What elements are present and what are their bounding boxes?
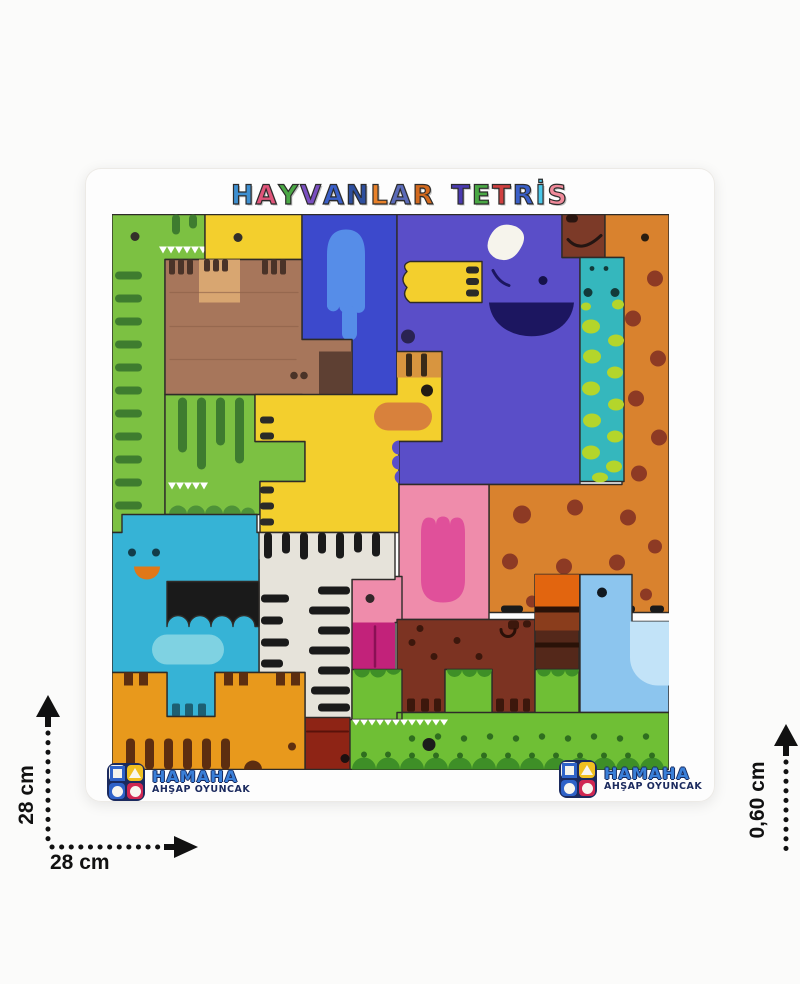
title-letter: İ: [536, 180, 548, 211]
puzzle-piece-pig: [399, 485, 489, 620]
piece-detail: [189, 215, 197, 229]
piece-detail: [609, 555, 625, 571]
logo-circle-icon: [561, 780, 577, 796]
piece-detail: [647, 271, 663, 287]
piece-detail: [372, 533, 380, 557]
piece-detail: [152, 635, 224, 665]
piece-detail: [260, 503, 274, 510]
piece-detail: [409, 639, 416, 646]
piece-detail: [169, 260, 175, 275]
title-letter: R: [413, 180, 436, 211]
piece-detail: [590, 266, 595, 271]
title-letter: T: [492, 180, 512, 211]
piece-detail: [597, 588, 607, 598]
piece-detail: [617, 735, 623, 741]
piece-detail: [115, 433, 142, 441]
piece-detail: [264, 533, 272, 559]
piece-detail: [606, 461, 622, 473]
logo-triangle-icon: [127, 765, 143, 781]
title-letter: S: [548, 180, 569, 211]
piece-detail: [612, 300, 624, 310]
logo-triangle-icon: [579, 762, 595, 778]
piece-detail: [604, 266, 609, 271]
piece-detail: [222, 260, 228, 272]
piece-detail: [139, 673, 148, 686]
piece-detail: [510, 699, 518, 712]
piece-detail: [185, 704, 193, 717]
piece-detail: [336, 533, 344, 559]
piece-detail: [476, 653, 483, 660]
width-label: 28 cm: [50, 851, 110, 875]
piece-detail: [318, 627, 350, 635]
piece-detail: [421, 354, 427, 377]
piece-detail: [421, 699, 429, 712]
piece-detail: [620, 510, 636, 526]
piece-detail: [271, 260, 277, 275]
puzzle-piece-moose-head: [562, 215, 605, 258]
piece-detail: [291, 673, 300, 686]
piece-detail: [224, 673, 233, 686]
piece-detail: [128, 549, 136, 557]
piece-detail: [280, 260, 286, 275]
piece-detail: [466, 267, 479, 274]
piece-detail: [198, 704, 206, 717]
height-label: 28 cm: [15, 745, 39, 845]
piece-detail: [457, 753, 463, 759]
title-letter: V: [300, 180, 323, 211]
piece-detail: [628, 391, 644, 407]
piece-detail: [115, 502, 142, 510]
piece-detail: [501, 606, 523, 613]
piece-detail: [421, 517, 465, 603]
piece-detail: [423, 738, 436, 751]
piece-detail: [435, 733, 441, 739]
piece-detail: [406, 354, 412, 377]
piece-detail: [553, 753, 559, 759]
title-letter: A: [256, 180, 279, 211]
piece-detail: [487, 733, 493, 739]
piece-detail: [276, 673, 285, 686]
title-letter: L: [370, 180, 389, 211]
piece-detail: [300, 533, 308, 560]
piece-detail: [124, 673, 133, 686]
piece-detail: [466, 278, 479, 285]
brand-name: HAMAHA: [604, 766, 702, 783]
title-letter: E: [472, 180, 492, 211]
piece-detail: [566, 215, 578, 223]
puzzle-title: HAYVANLARTETRİS: [85, 180, 715, 211]
piece-detail: [178, 260, 184, 275]
puzzle-board: HAYVANLARTETRİS HAMAHA AHŞAP OYUNCAK HAM…: [85, 168, 715, 802]
piece-detail: [318, 667, 350, 675]
piece-detail: [582, 320, 600, 334]
puzzle-piece-fox: [535, 575, 579, 670]
piece-detail: [592, 473, 608, 483]
logo-square-icon: [561, 762, 577, 778]
piece-detail: [260, 519, 274, 526]
piece-detail: [466, 290, 479, 297]
piece-detail: [115, 456, 142, 464]
puzzle-image: [112, 214, 669, 770]
piece-detail: [409, 735, 415, 741]
piece-detail: [152, 549, 160, 557]
title-letter: N: [346, 180, 371, 211]
piece-detail: [650, 351, 666, 367]
piece-detail: [361, 752, 367, 758]
piece-detail: [611, 288, 620, 297]
piece-detail: [454, 637, 461, 644]
piece-detail: [172, 704, 180, 717]
title-letter: T: [451, 180, 471, 211]
piece-detail: [407, 699, 415, 712]
piece-detail: [261, 639, 289, 647]
piece-detail: [625, 753, 631, 759]
piece-detail: [342, 307, 357, 341]
piece-detail: [318, 533, 326, 554]
piece-detail: [309, 647, 350, 655]
title-letter: R: [513, 180, 536, 211]
piece-detail: [535, 613, 579, 631]
piece-detail: [583, 350, 601, 364]
piece-detail: [318, 587, 350, 595]
piece-detail: [582, 382, 600, 396]
piece-detail: [204, 260, 210, 272]
piece-detail: [641, 234, 649, 242]
piece-detail: [496, 699, 504, 712]
piece-detail: [397, 352, 442, 378]
piece-detail: [535, 575, 579, 607]
piece-detail: [131, 232, 140, 241]
piece-detail: [213, 260, 219, 272]
piece-detail: [607, 367, 623, 379]
puzzle-piece-rhino: [392, 215, 580, 485]
piece-detail: [239, 673, 248, 686]
piece-detail: [584, 288, 593, 297]
piece-detail: [115, 318, 142, 326]
piece-detail: [115, 364, 142, 372]
brand-logo-left: HAMAHA AHŞAP OYUNCAK: [107, 763, 250, 801]
piece-detail: [261, 595, 289, 603]
brand-text: HAMAHA AHŞAP OYUNCAK: [604, 766, 702, 793]
piece-detail: [535, 643, 579, 648]
logo-circle2-icon: [579, 780, 595, 796]
puzzle-piece-lion-bar: [403, 262, 482, 303]
brand-text: HAMAHA AHŞAP OYUNCAK: [152, 769, 250, 796]
piece-detail: [401, 330, 415, 344]
brand-logo-icon: [107, 763, 145, 801]
piece-detail: [581, 303, 591, 311]
title-word-tetris: TETRİS: [451, 180, 569, 211]
piece-detail: [539, 276, 548, 285]
piece-detail: [115, 479, 142, 487]
piece-detail: [261, 617, 283, 625]
piece-detail: [235, 398, 244, 464]
piece-detail: [374, 403, 432, 431]
piece-detail: [582, 446, 600, 460]
title-word-hayvanlar: HAYVANLAR: [231, 180, 435, 211]
piece-detail: [187, 260, 193, 275]
logo-circle2-icon: [127, 783, 143, 799]
piece-detail: [481, 753, 487, 759]
piece-detail: [523, 621, 531, 628]
piece-detail: [178, 398, 187, 453]
title-letter: A: [390, 180, 413, 211]
brand-subtitle: AHŞAP OYUNCAK: [604, 782, 702, 792]
piece-detail: [567, 500, 583, 516]
piece-detail: [352, 623, 395, 670]
piece-detail: [309, 607, 350, 615]
piece-detail: [115, 410, 142, 418]
piece-detail: [508, 621, 519, 630]
piece-detail: [591, 733, 597, 739]
piece-detail: [625, 311, 641, 327]
height-arrow-icon: [36, 695, 60, 845]
piece-detail: [288, 743, 296, 751]
piece-detail: [311, 687, 350, 695]
piece-detail: [261, 660, 283, 668]
thickness-arrow-icon: [774, 724, 798, 860]
piece-detail: [505, 753, 511, 759]
piece-detail: [115, 341, 142, 349]
piece-detail: [260, 487, 274, 494]
piece-detail: [262, 260, 268, 275]
piece-detail: [431, 653, 438, 660]
logo-circle-icon: [109, 783, 125, 799]
puzzle-piece-snake: [580, 258, 624, 483]
logo-square-icon: [109, 765, 125, 781]
piece-detail: [608, 399, 624, 411]
piece-detail: [421, 385, 433, 397]
piece-detail: [197, 398, 206, 470]
piece-detail: [115, 295, 142, 303]
piece-detail: [434, 699, 441, 712]
piece-detail: [648, 540, 662, 554]
piece-detail: [529, 753, 535, 759]
title-letter: H: [231, 180, 256, 211]
piece-detail: [234, 233, 243, 242]
product-photo-page: { "title": { "words": [ {"letters":[{"ch…: [0, 0, 800, 984]
piece-detail: [565, 735, 571, 741]
thickness-label: 0,60 cm: [746, 750, 770, 850]
brand-name: HAMAHA: [152, 769, 250, 786]
piece-detail: [354, 533, 362, 553]
piece-detail: [385, 752, 391, 758]
title-letter: A: [323, 180, 346, 211]
piece-detail: [260, 417, 274, 424]
piece-detail: [513, 506, 531, 524]
piece-detail: [417, 625, 424, 632]
puzzle-piece-duck: [205, 215, 302, 260]
piece-detail: [260, 433, 274, 440]
piece-detail: [327, 230, 365, 313]
piece-detail: [651, 430, 667, 446]
piece-detail: [583, 414, 601, 428]
puzzle-piece-brick: [305, 718, 350, 770]
piece-detail: [366, 594, 375, 603]
piece-detail: [216, 398, 225, 446]
piece-detail: [577, 753, 583, 759]
piece-detail: [319, 352, 352, 397]
title-letter: Y: [279, 180, 301, 211]
piece-detail: [115, 387, 142, 395]
piece-detail: [523, 699, 530, 712]
piece-detail: [318, 704, 350, 712]
piece-detail: [433, 753, 439, 759]
piece-detail: [282, 533, 290, 554]
puzzle-piece-flamingo: [352, 577, 402, 670]
brand-logo-icon: [559, 760, 597, 798]
piece-detail: [172, 215, 180, 235]
piece-detail: [300, 372, 308, 380]
piece-detail: [513, 735, 519, 741]
piece-detail: [409, 753, 415, 759]
piece-detail: [649, 753, 655, 759]
piece-detail: [539, 733, 545, 739]
piece-detail: [290, 372, 298, 380]
piece-detail: [341, 754, 350, 763]
piece-detail: [608, 335, 624, 347]
piece-detail: [640, 589, 652, 601]
piece-detail: [535, 607, 579, 613]
brand-subtitle: AHŞAP OYUNCAK: [152, 785, 250, 795]
piece-detail: [643, 733, 649, 739]
piece-detail: [631, 466, 647, 482]
piece-detail: [115, 272, 142, 280]
brand-logo-right: HAMAHA AHŞAP OYUNCAK: [559, 760, 702, 798]
piece-detail: [502, 554, 518, 570]
piece-detail: [601, 753, 607, 759]
piece-detail: [556, 559, 572, 575]
piece-detail: [461, 735, 467, 741]
piece-detail: [607, 431, 623, 443]
piece-detail: [650, 606, 664, 613]
